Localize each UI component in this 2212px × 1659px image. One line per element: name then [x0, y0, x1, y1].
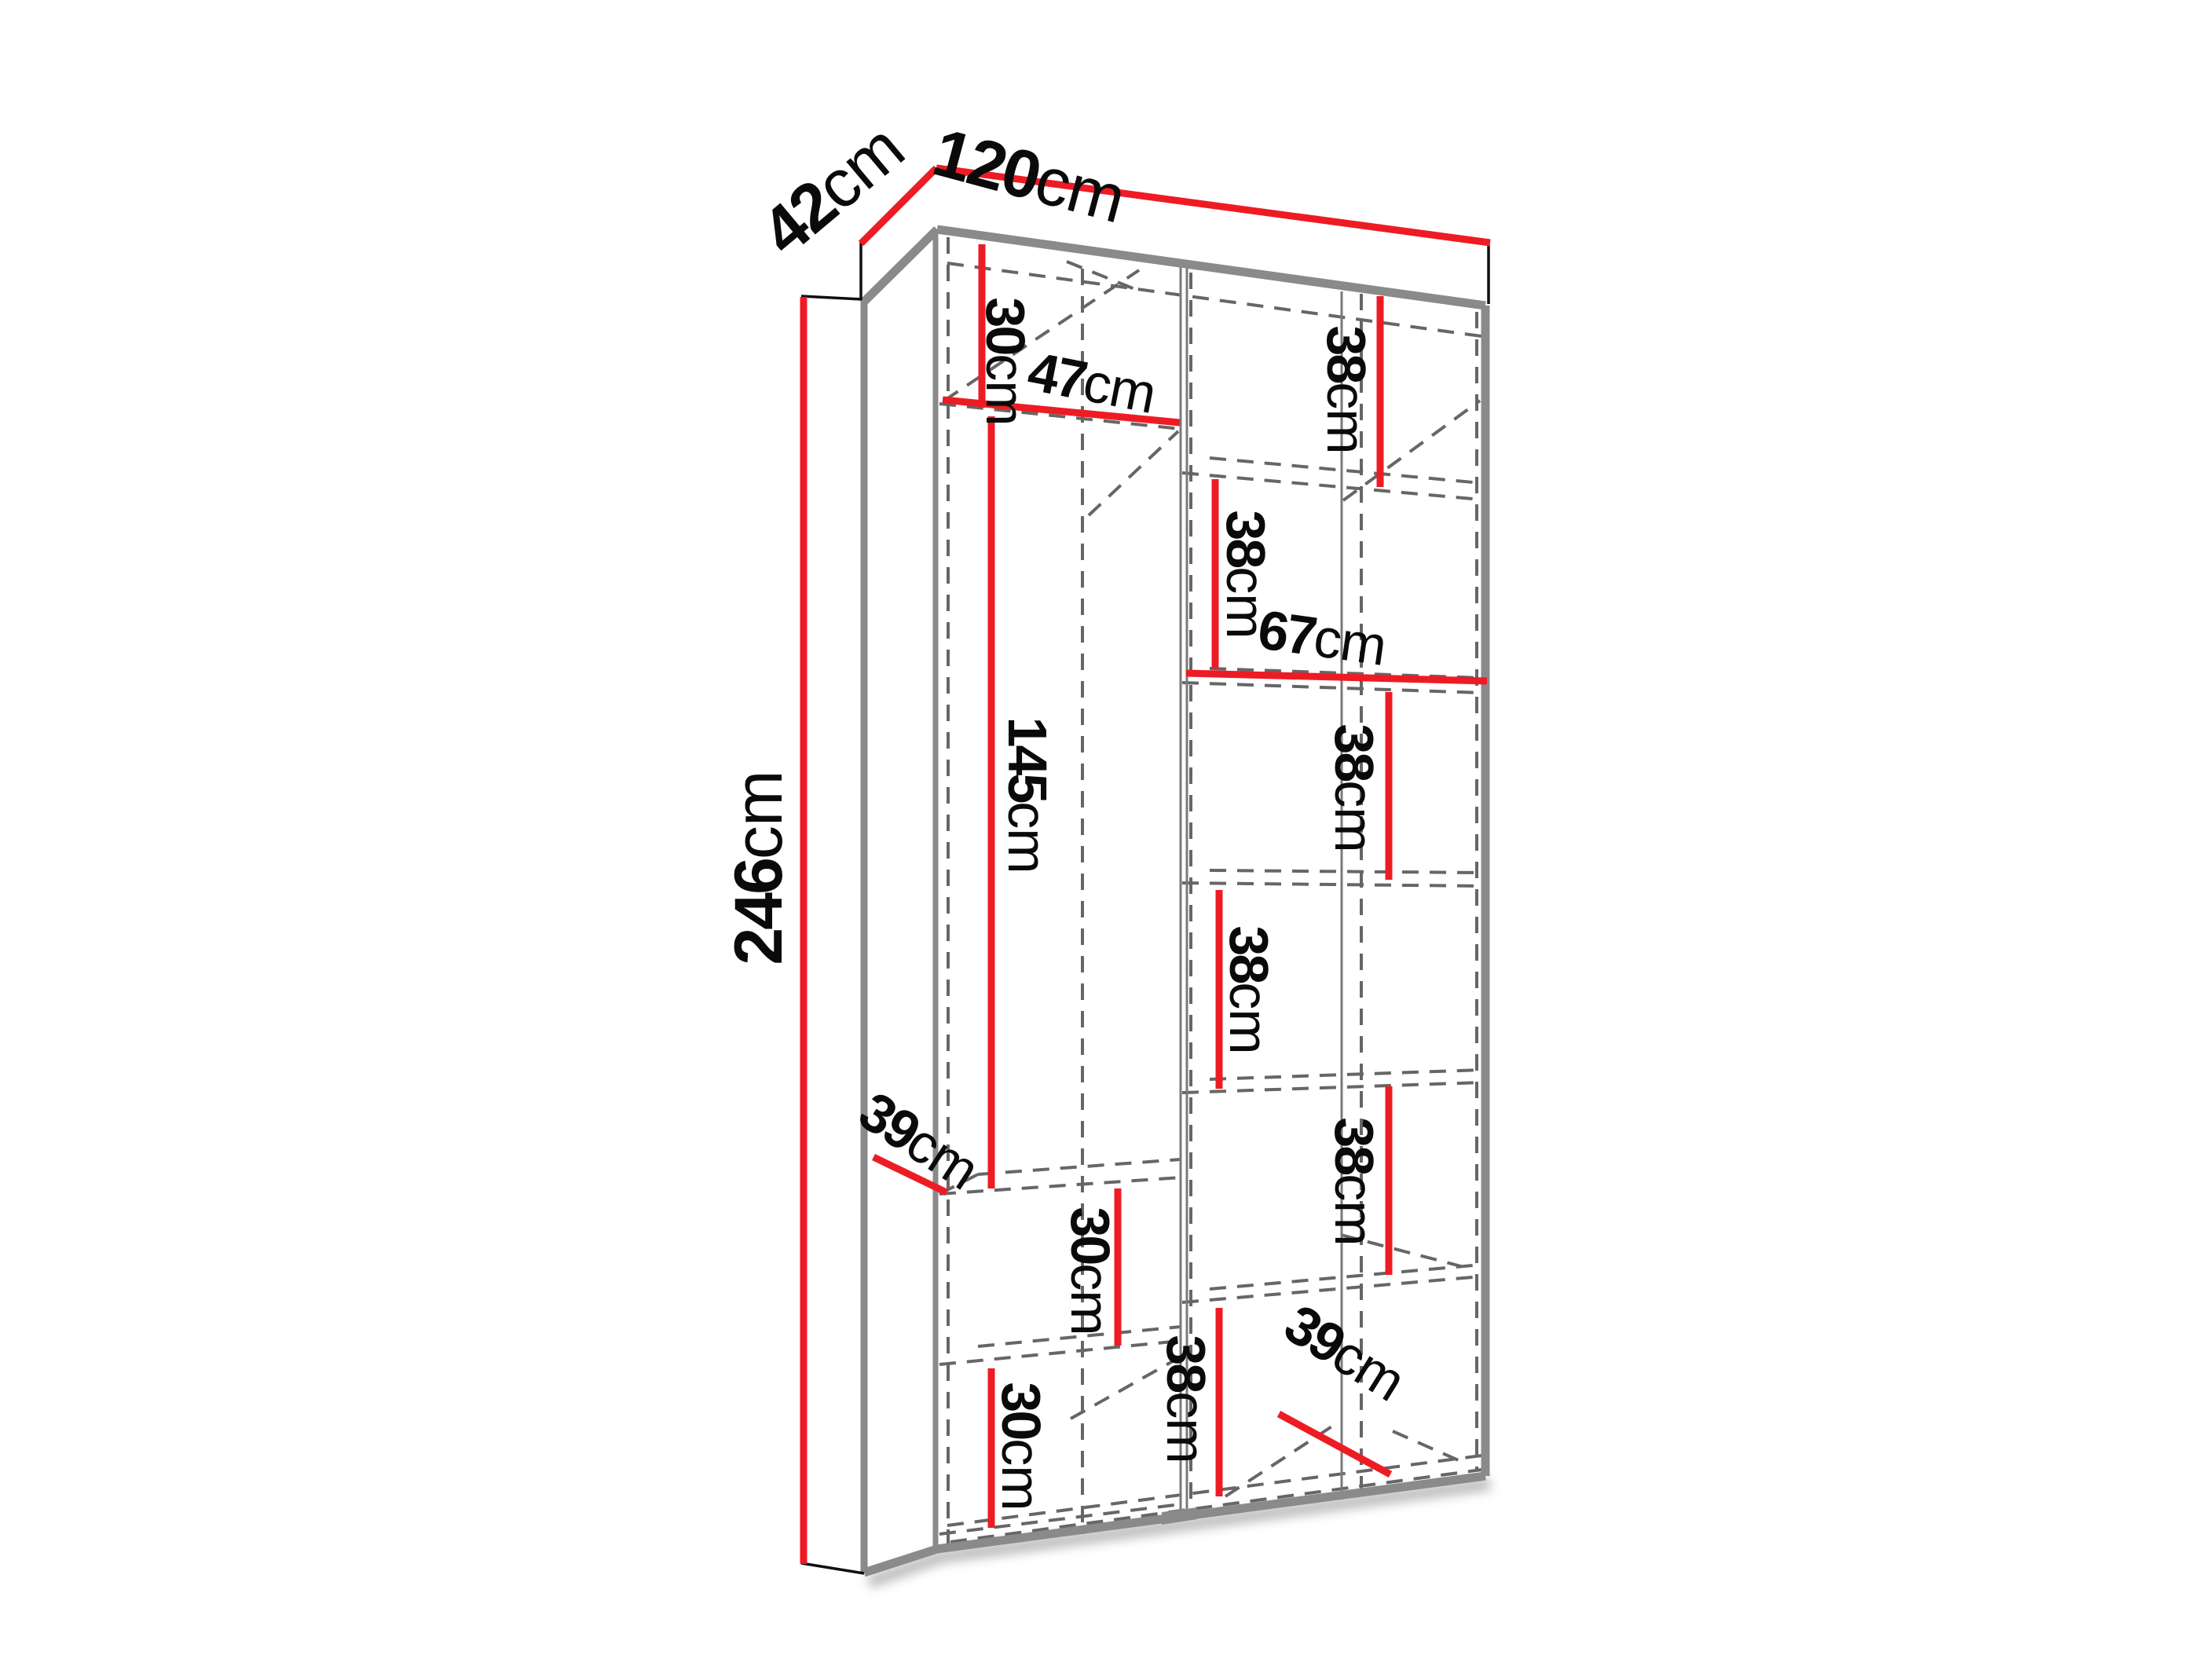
dim-label-bottom-30b: 30cm — [991, 1382, 1052, 1510]
dashed-shelf-right-5 — [1182, 1276, 1481, 1302]
tick-height-bottom — [801, 1563, 864, 1573]
dashed-shelf-right-2 — [1182, 683, 1481, 693]
dim-line-depth-39-right — [1279, 1414, 1390, 1474]
dim-label-right-38c: 38cm — [1324, 723, 1385, 851]
dim-label-right-38e: 38cm — [1324, 1117, 1385, 1245]
dashed-shelf-right-1 — [1182, 473, 1481, 500]
dim-label-height-246: 246cm — [721, 771, 797, 965]
dashed-shelf-right-5-back — [1210, 1265, 1481, 1289]
edge-top-front — [937, 229, 1485, 306]
dim-label-right-38a: 38cm — [1316, 325, 1377, 453]
dimension-labels: 42cm 120cm 246cm 30cm 47cm 38cm 38cm 67c… — [721, 110, 1415, 1510]
dashed-shelf-left-3 — [939, 1341, 1181, 1364]
wardrobe-dimension-diagram: 42cm 120cm 246cm 30cm 47cm 38cm 38cm 67c… — [0, 0, 2212, 1659]
dashed-shelf-right-3-back — [1210, 870, 1481, 873]
page: { "diagram": { "type": "furniture dimens… — [0, 0, 2212, 1659]
tick-height-top — [801, 296, 862, 299]
dashed-shelf-right-4-back — [1210, 1070, 1481, 1079]
dashed-shelf-left-2 — [939, 1177, 1181, 1194]
dim-label-right-67: 67cm — [1254, 599, 1390, 677]
dim-label-mid-38f: 38cm — [1155, 1335, 1217, 1463]
dim-label-top-30: 30cm — [975, 297, 1036, 425]
dashed-depth-diagonal-bottom-right — [1393, 1431, 1467, 1464]
dim-label-width-120: 120cm — [925, 115, 1133, 238]
dim-label-hang-145: 145cm — [997, 716, 1058, 873]
dashed-shelf-right-4 — [1182, 1082, 1481, 1093]
dashed-shelf-right-3 — [1182, 883, 1481, 886]
dim-line-right-67 — [1186, 673, 1487, 681]
dim-label-depth-42: 42cm — [748, 110, 918, 270]
dim-label-mid-30a: 30cm — [1060, 1207, 1121, 1335]
dim-label-depth-39-right: 39cm — [1274, 1293, 1415, 1413]
dim-label-mid-38d: 38cm — [1218, 925, 1280, 1053]
dashed-shelf-left-2-back — [978, 1159, 1181, 1174]
edge-top-left-diagonal — [864, 229, 937, 302]
dashed-depth-diagonal-left — [1089, 431, 1178, 515]
